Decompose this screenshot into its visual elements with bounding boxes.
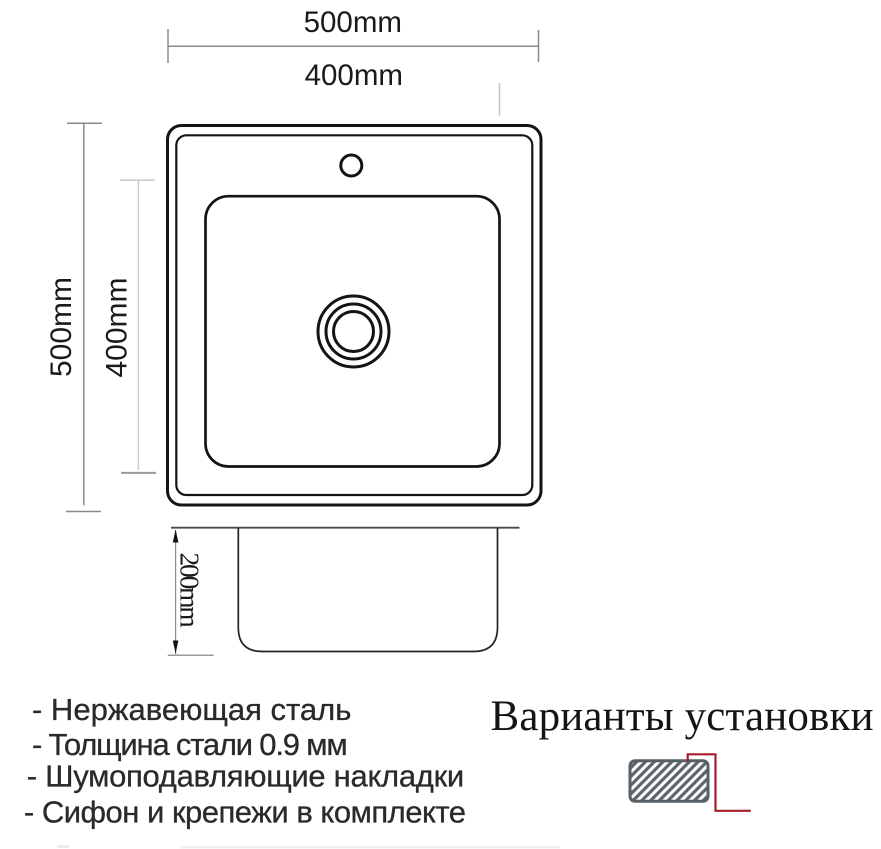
svg-text:Варианты установки: Варианты установки (491, 693, 874, 740)
svg-text:- Нержавеющая сталь: - Нержавеющая сталь (32, 692, 351, 727)
svg-text:500mm: 500mm (304, 6, 402, 39)
svg-text:- Сифон и крепежи в комплекте: - Сифон и крепежи в комплекте (24, 795, 466, 830)
svg-text:400mm: 400mm (305, 59, 403, 92)
svg-text:400mm: 400mm (100, 277, 133, 377)
svg-text:- Шумоподавляющие накладки: - Шумоподавляющие накладки (27, 758, 464, 793)
svg-text:200mm: 200mm (175, 552, 206, 627)
svg-text:500mm: 500mm (45, 277, 78, 377)
svg-text:- Толщина стали 0.9 мм: - Толщина стали 0.9 мм (32, 727, 346, 762)
